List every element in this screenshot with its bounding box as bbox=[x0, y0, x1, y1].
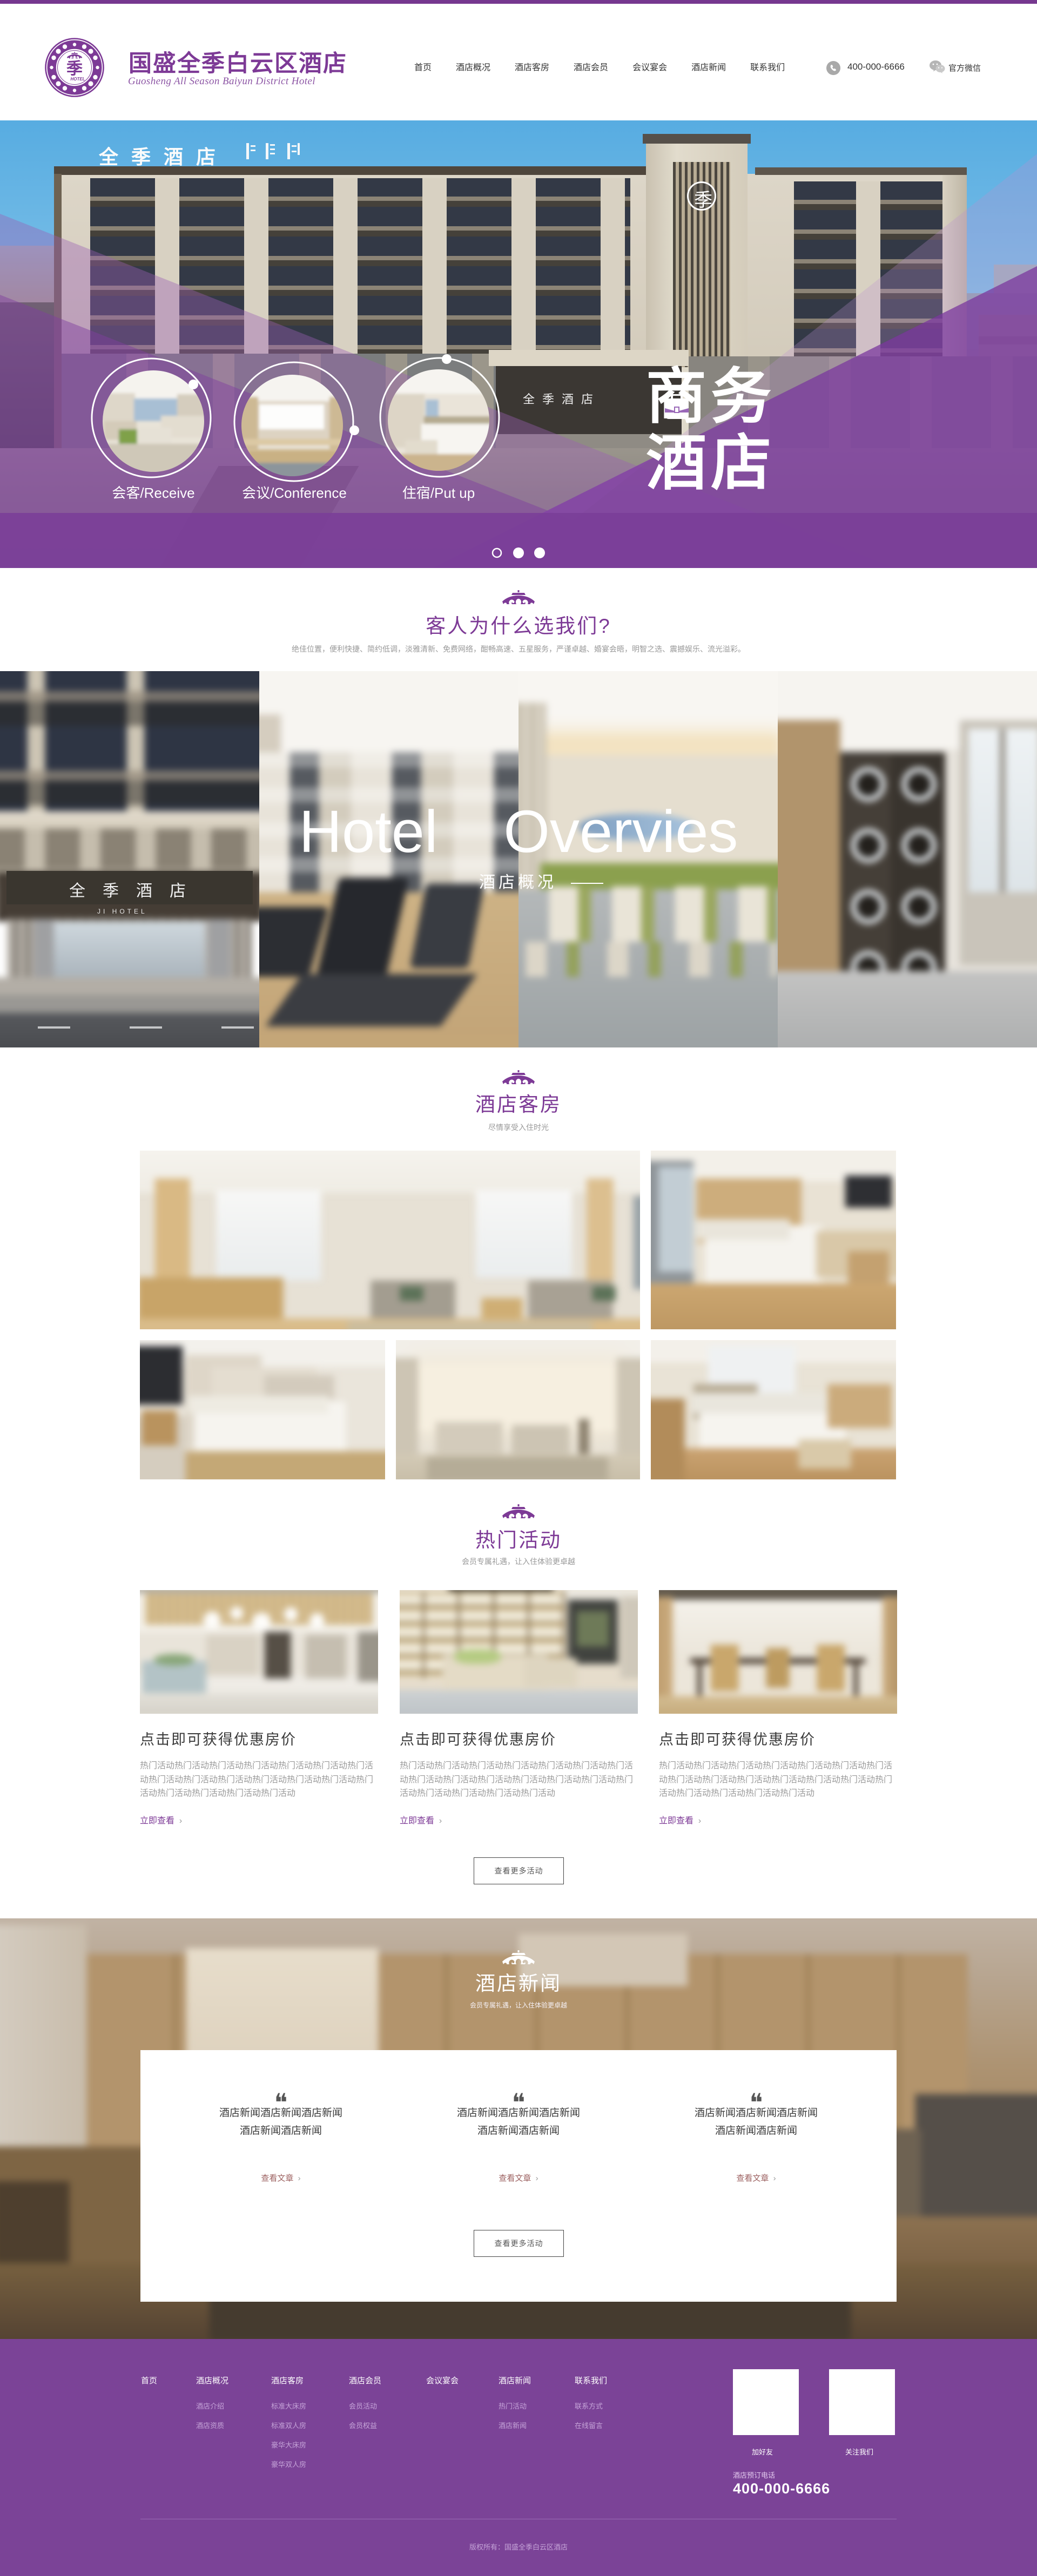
svg-text:HOTEL: HOTEL bbox=[70, 77, 85, 82]
svg-text:季: 季 bbox=[66, 60, 83, 78]
